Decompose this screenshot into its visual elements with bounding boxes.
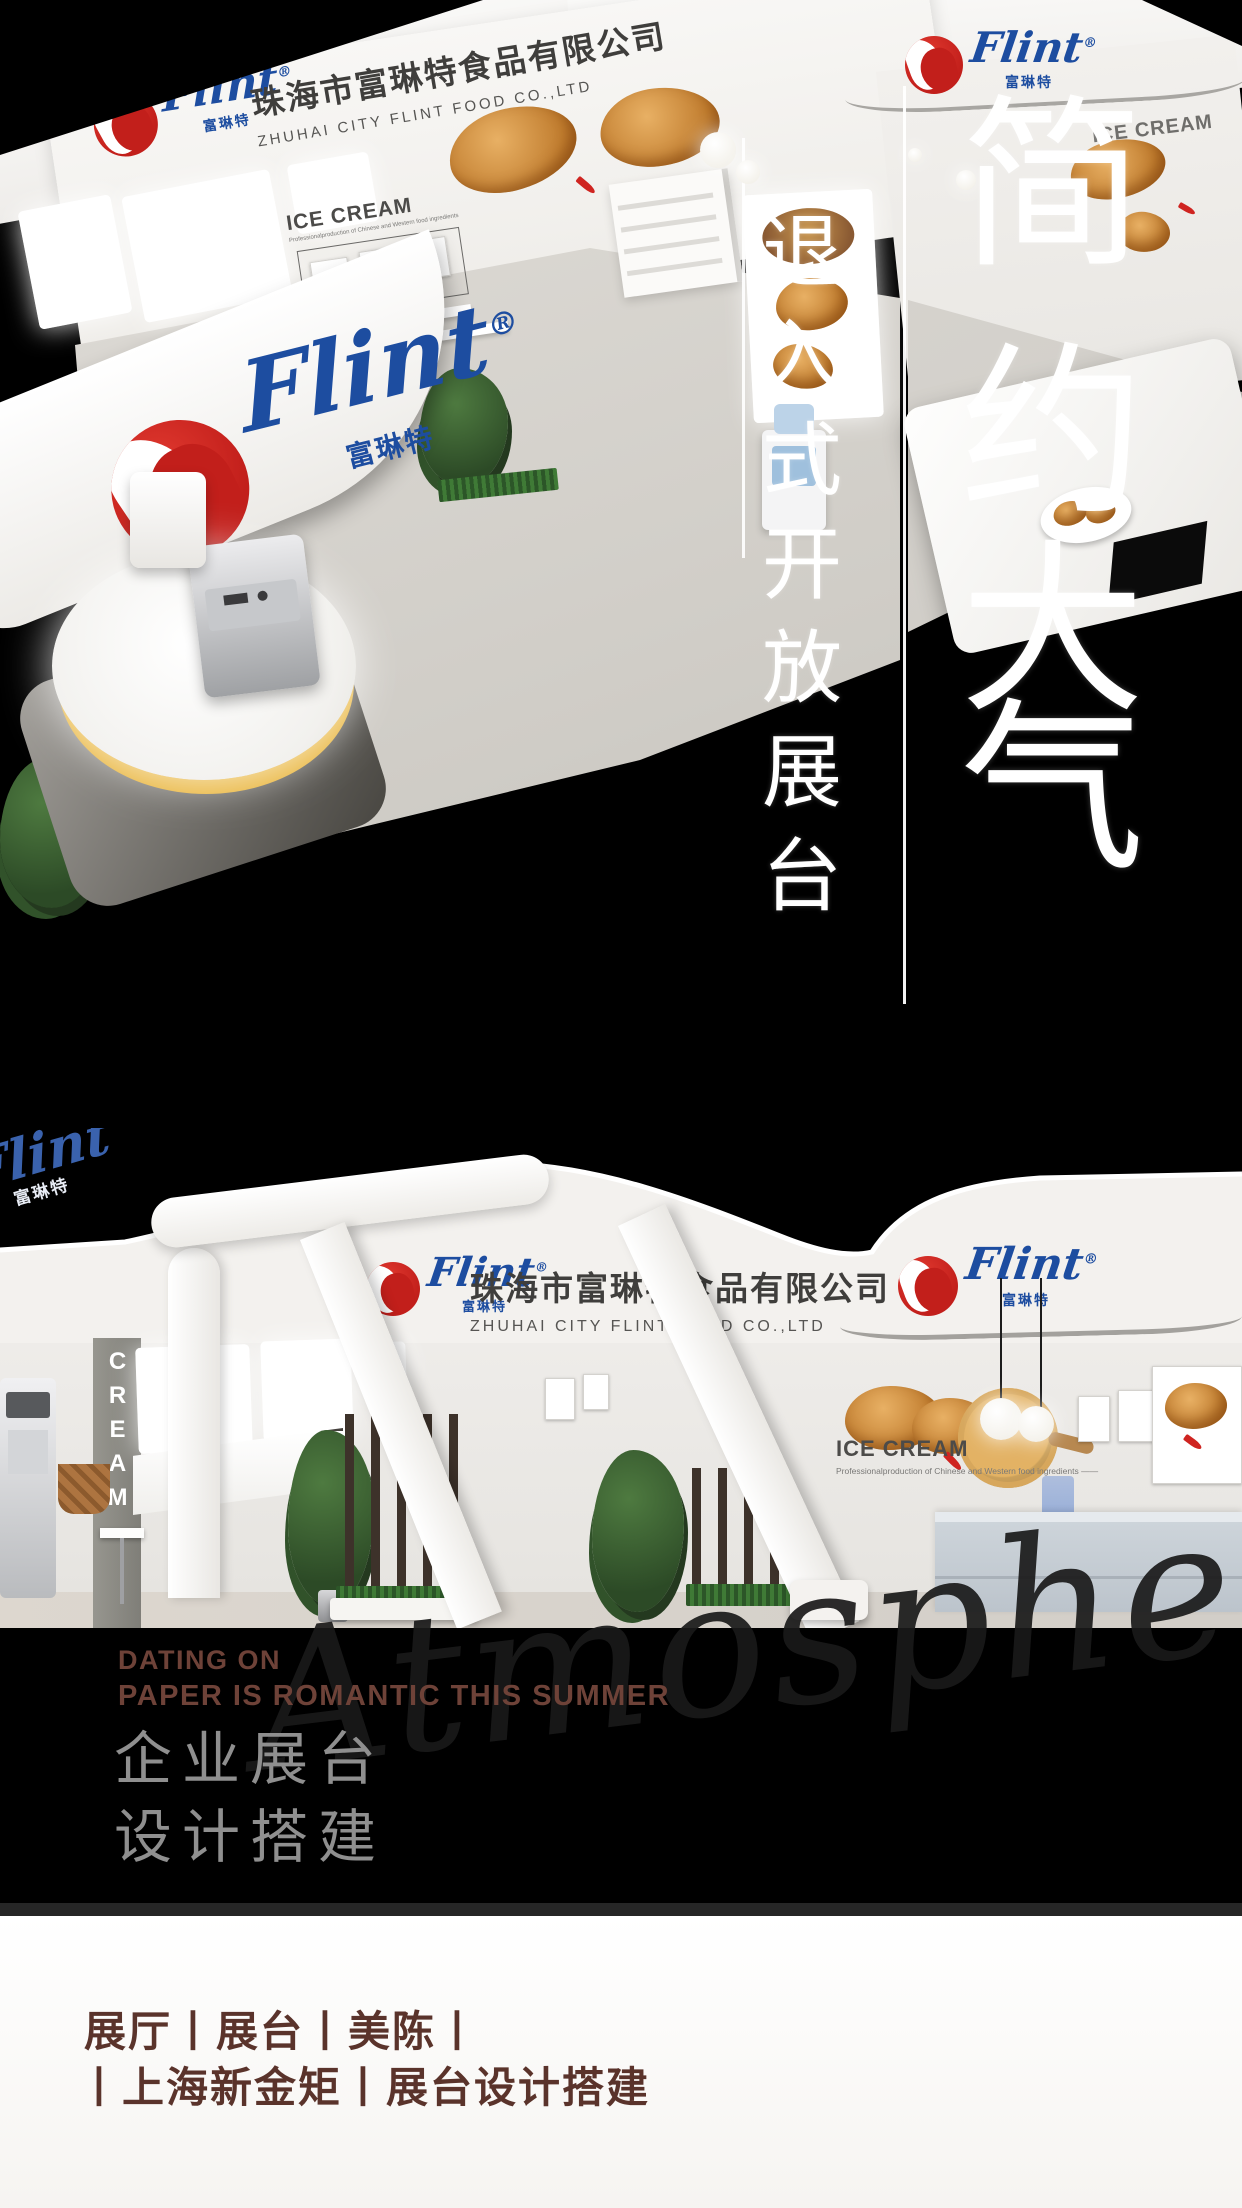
bar-table-set	[472, 608, 542, 682]
flint-bird-icon	[898, 1256, 958, 1316]
matcha-icecream-graphic	[167, 188, 256, 310]
sub-title-char: 放	[760, 628, 844, 710]
bar-table-set	[658, 520, 725, 590]
sub-title-column: 退 入 式 开 放 展 台	[760, 212, 844, 918]
lamp-globe	[700, 132, 736, 168]
bar-table-set	[703, 412, 763, 475]
icecream-subline: Professionalproduction of Chinese and We…	[836, 1466, 1096, 1476]
sub-title-char: 台	[760, 836, 844, 918]
deco-dot	[908, 148, 922, 162]
pendant-lamp	[980, 1398, 1022, 1440]
watermark-script: Atmosphere	[240, 1520, 1242, 1816]
poster: Flint® 富琳特 珠海市富琳特食品有限公司 ZHUHAI CITY FLIN…	[0, 0, 1242, 2208]
lamp-cord	[1040, 1278, 1042, 1414]
main-title-char-1: 简	[950, 95, 1155, 280]
wall-frame	[1078, 1396, 1110, 1442]
footer-line2: 丨上海新金矩丨展台设计搭建	[78, 2054, 650, 2115]
service-line1: 企业展台	[114, 1712, 386, 1796]
flint-script-logo: Flint®	[963, 1246, 1099, 1283]
icecream-panel-right: ICE CREAM Professionalproduction of Chin…	[836, 1436, 1096, 1476]
arch-left-leg	[168, 1248, 220, 1598]
sub-title-char: 入	[760, 316, 844, 398]
wall-frame	[583, 1374, 609, 1410]
sub-title-char: 式	[760, 420, 844, 502]
sub-title-char: 退	[760, 212, 844, 294]
main-title-char-2: 约	[950, 342, 1155, 527]
footer-divider-strip	[0, 1903, 1242, 1916]
strawberry-icecream-graphic	[36, 211, 113, 317]
main-title-char-4: 气	[950, 698, 1155, 883]
lamp-cord	[1000, 1278, 1002, 1406]
lamp-pole	[742, 138, 745, 558]
tagline-line1: DATING ON	[118, 1645, 281, 1676]
bar-table-set	[626, 328, 682, 387]
flint-script-logo: Flint®	[968, 30, 1098, 66]
side-table	[100, 1528, 144, 1614]
sub-title-char: 展	[760, 732, 844, 814]
shelf-unit	[609, 168, 744, 298]
bar-table-set	[392, 522, 462, 596]
sub-title-char: 开	[760, 524, 844, 606]
chicken-poster	[1152, 1366, 1242, 1484]
icecream-statue	[112, 352, 222, 602]
icecream-lightbox	[260, 1338, 353, 1441]
service-line2: 设计搭建	[114, 1790, 386, 1874]
footer-line1: 展厅丨展台丨美陈丨	[84, 1998, 480, 2059]
wall-frame	[1118, 1390, 1154, 1442]
lamp-globe	[736, 160, 760, 184]
icecream-statue2	[44, 1346, 124, 1536]
title-divider-line	[903, 86, 906, 1004]
footer: 展厅丨展台丨美陈丨 丨上海新金矩丨展台设计搭建	[0, 1916, 1242, 2208]
tagline-line2: PAPER IS ROMANTIC THIS SUMMER	[118, 1680, 670, 1713]
wall-frame	[545, 1378, 575, 1420]
icecream-heading: ICE CREAM	[836, 1436, 1096, 1462]
